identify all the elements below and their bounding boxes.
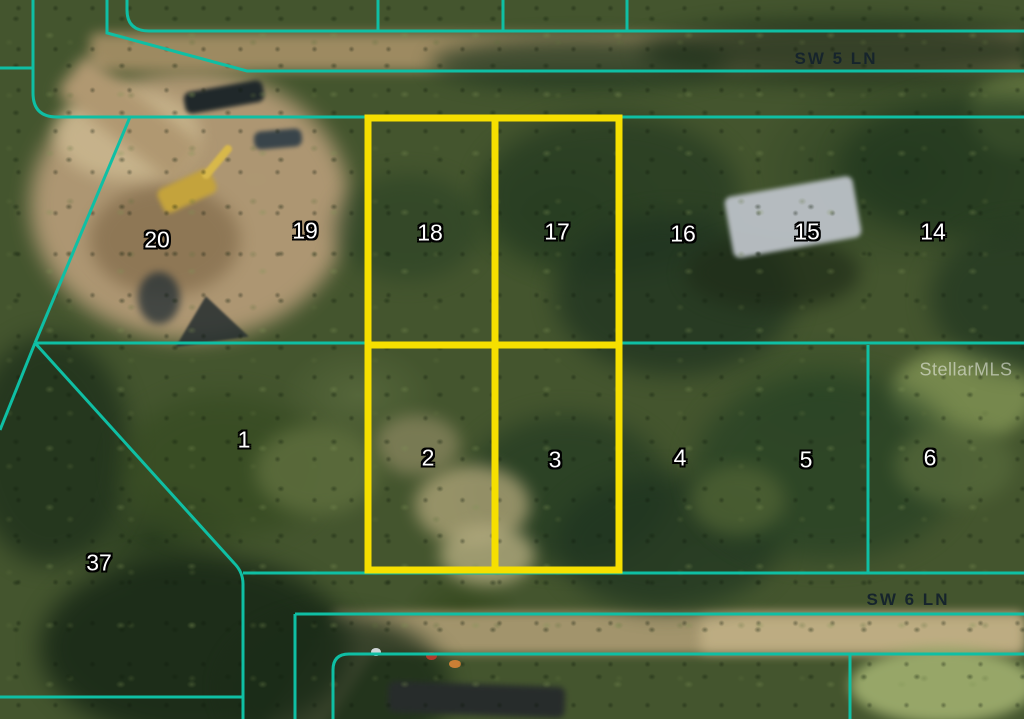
- parcel-boundaries-overlay: [0, 0, 1024, 719]
- road-sw5-lower-edge: [107, 0, 1024, 71]
- parcel-label-15: 15: [794, 221, 820, 244]
- stellar-mls-watermark: StellarMLS: [919, 360, 1012, 381]
- parcel-label-14: 14: [920, 221, 946, 244]
- diagonal-boundary-upper: [35, 117, 130, 343]
- parcel-label-20: 20: [144, 229, 170, 252]
- parcel-label-4: 4: [674, 447, 687, 470]
- aerial-map: 20 19 18 17 16 15 14 1 2 3 4 5 6 37 SW 5…: [0, 0, 1024, 719]
- parcel-label-19: 19: [292, 220, 318, 243]
- road-label-sw6ln: SW 6 LN: [867, 590, 950, 610]
- parcel-label-2: 2: [422, 447, 435, 470]
- parcel-label-16: 16: [670, 223, 696, 246]
- parcel-label-37: 37: [86, 552, 112, 575]
- parcel-label-5: 5: [800, 449, 813, 472]
- parcel-label-6: 6: [924, 447, 937, 470]
- diagonal-boundary-lower: [0, 343, 35, 430]
- road-label-sw5ln: SW 5 LN: [795, 49, 878, 69]
- road-sw5-upper-edge: [127, 0, 1024, 31]
- parcel-label-18: 18: [417, 222, 443, 245]
- parcel-label-3: 3: [549, 449, 562, 472]
- road-sw6-lower-edge: [333, 654, 1024, 719]
- parcel-label-1: 1: [238, 429, 251, 452]
- parcel37-diagonal-boundary: [35, 343, 243, 719]
- parcel-label-17: 17: [544, 221, 570, 244]
